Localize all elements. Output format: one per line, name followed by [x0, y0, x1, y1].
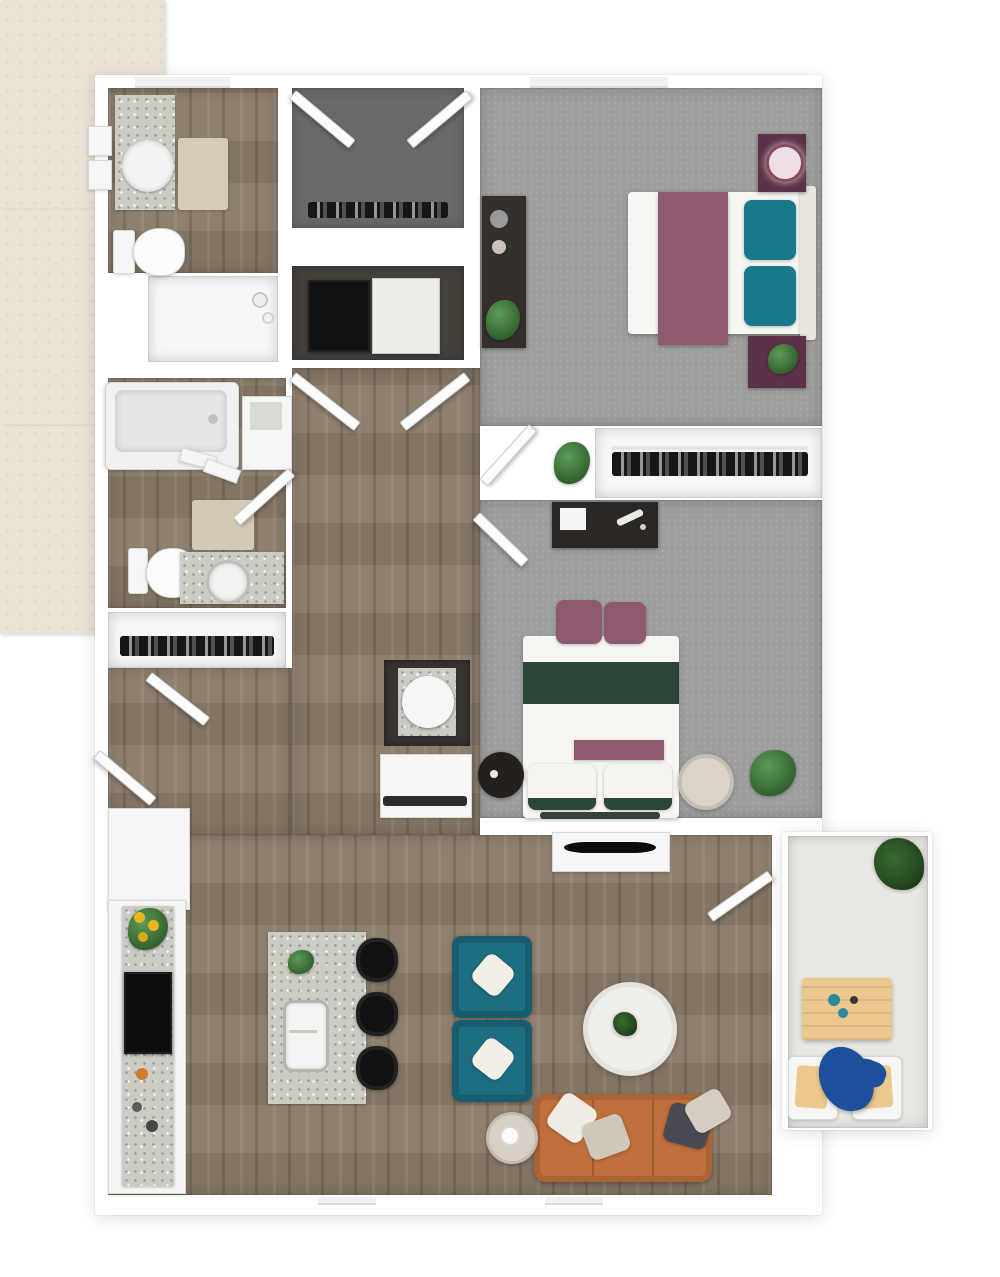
- patio-cup-a: [828, 994, 840, 1006]
- bedside-lamp: [766, 144, 804, 182]
- sink-divider: [289, 1030, 317, 1033]
- bedroom-1-headboard: [800, 186, 816, 340]
- bedroom-1-bed-runner: [658, 192, 728, 345]
- bath1-vessel-sink: [122, 140, 174, 192]
- kitchen-counter-return: [108, 808, 190, 910]
- shower-head-mark: [262, 312, 274, 324]
- bedroom-1-teal-pillow-a: [744, 200, 796, 260]
- side-table-dark: [478, 752, 524, 798]
- washer: [308, 280, 370, 352]
- shower-drain: [252, 292, 268, 308]
- bar-stool-3: [356, 1046, 398, 1090]
- utility-basin: [402, 676, 454, 728]
- toilet-2-tank: [128, 548, 148, 594]
- bedroom-2-plum-pillow-b: [604, 602, 646, 644]
- side-table-mug: [500, 1126, 520, 1146]
- counter-item-dark-a: [132, 1102, 142, 1112]
- hall-closet-rod: [120, 636, 274, 656]
- bedroom-2-dresser-knob: [640, 524, 646, 530]
- sunflower-c: [138, 932, 148, 942]
- wall-towel-a: [88, 126, 112, 156]
- closet-b-shelf: [612, 446, 808, 450]
- sunflower-b: [148, 920, 159, 931]
- bedroom-2-dresser-panel: [560, 508, 586, 530]
- sofa-seam-b: [652, 1100, 654, 1176]
- patio-table-item: [850, 996, 858, 1004]
- tub-drain: [208, 414, 218, 424]
- bedroom-2-bench-rail: [540, 812, 660, 819]
- utility-cubby-rail: [383, 796, 467, 806]
- living-window-a: [318, 1197, 376, 1205]
- bedroom-2-white-pillow-b: [604, 764, 672, 810]
- side-table-dark-decor: [490, 770, 498, 778]
- utility-cubby: [380, 754, 472, 818]
- floor-plan: [0, 0, 1000, 1277]
- island-farmhouse-sink: [283, 1000, 329, 1072]
- shower-floor: [148, 276, 278, 362]
- counter-item-orange: [136, 1068, 148, 1080]
- dresser-decor-b: [492, 240, 506, 254]
- living-window-b: [545, 1197, 603, 1205]
- tv-screen: [564, 842, 656, 853]
- range: [124, 972, 172, 1054]
- bedroom-1-teal-pillow-b: [744, 266, 796, 326]
- toilet-1-bowl: [133, 228, 185, 276]
- bedroom-1-window: [530, 77, 668, 88]
- bath2-niche-shelf: [250, 402, 282, 430]
- sunflower-a: [134, 912, 145, 923]
- side-table-light: [678, 754, 734, 810]
- bedroom-2-white-pillow-a: [528, 764, 596, 810]
- bath2-sink: [206, 560, 250, 604]
- bathroom-1-window: [135, 77, 230, 88]
- bedroom-2-green-blanket: [523, 662, 679, 704]
- coffee-table-plant: [613, 1012, 637, 1036]
- entry-closet-rod: [308, 202, 448, 218]
- dresser-decor-a: [490, 210, 508, 228]
- counter-item-dark-b: [146, 1120, 158, 1132]
- bath1-mat: [178, 138, 228, 210]
- bedroom-1-closet-rod: [612, 452, 808, 476]
- dryer: [372, 278, 440, 354]
- bar-stool-1: [356, 938, 398, 982]
- toilet-1-tank: [113, 230, 135, 274]
- bar-stool-2: [356, 992, 398, 1036]
- patio-cup-b: [838, 1008, 848, 1018]
- bedroom-2-runner: [574, 740, 664, 760]
- wall-towel-b: [88, 160, 112, 190]
- bedroom-2-plum-pillow-a: [556, 600, 602, 644]
